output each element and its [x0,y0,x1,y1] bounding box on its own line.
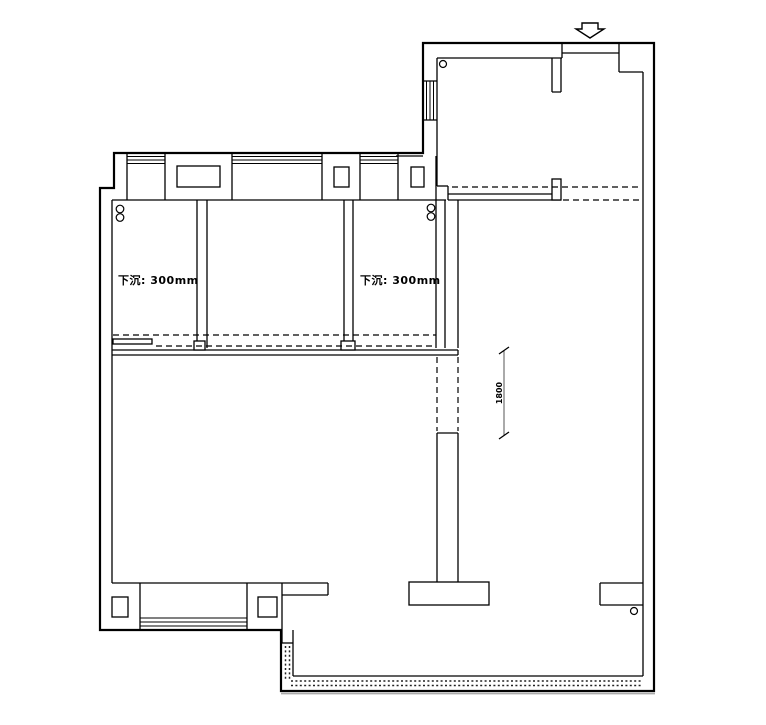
pillar-d-hole [112,597,128,617]
window-1 [127,157,165,164]
window-4 [140,618,247,626]
pillar-b-hole [334,167,349,187]
entry-half-wall [437,179,561,200]
half-wall-stub [552,179,561,200]
window-2 [232,157,322,164]
balcony [281,630,655,694]
sunken-label-left: 下沉: 300mm [118,273,199,287]
north-window-band [112,153,446,200]
t-column-foot [409,582,489,605]
central-opening [437,357,458,431]
t-column [409,433,489,605]
dashed-beam-lines-left [113,335,436,346]
pipe-circle-icon [116,214,124,222]
divider-wall-2 [344,200,353,348]
interior-walls [112,200,458,583]
sunken-label-right: 下沉: 300mm [360,273,441,287]
entry-room-window [423,81,437,120]
floorplan-drawing: 1800 [0,0,766,725]
rooms-south-wall [112,350,458,355]
pillar-c-hole [411,167,424,187]
pipe-circle-icon [440,61,447,68]
dimension-text: 1800 [495,381,504,404]
wall-return [113,339,152,344]
dimension: 1800 [495,347,509,439]
entry-wall-stub [552,58,561,92]
pillar-a-hole [177,166,220,187]
pipe-circle-icon [116,205,124,213]
entry-arrow-icon [576,23,604,38]
floorplan-canvas: 1800 [0,0,766,725]
south-wall-extension [282,583,328,595]
pipe-circle-icon [427,204,435,212]
labels: 下沉: 300mm 下沉: 300mm [118,273,441,287]
pipe-markers [116,61,637,615]
exterior-walls [100,43,654,691]
pipe-circle-icon [427,213,435,221]
building-outline [100,43,654,691]
window-3 [360,157,398,164]
pillar-e-hole [258,597,277,617]
east-wall-block [600,583,643,605]
pipe-circle-icon [631,608,638,615]
entry-room-walls [423,43,643,676]
down-arrow-icon [576,23,604,38]
south-window-band [112,583,328,643]
balcony-railing-dotted [286,646,642,686]
